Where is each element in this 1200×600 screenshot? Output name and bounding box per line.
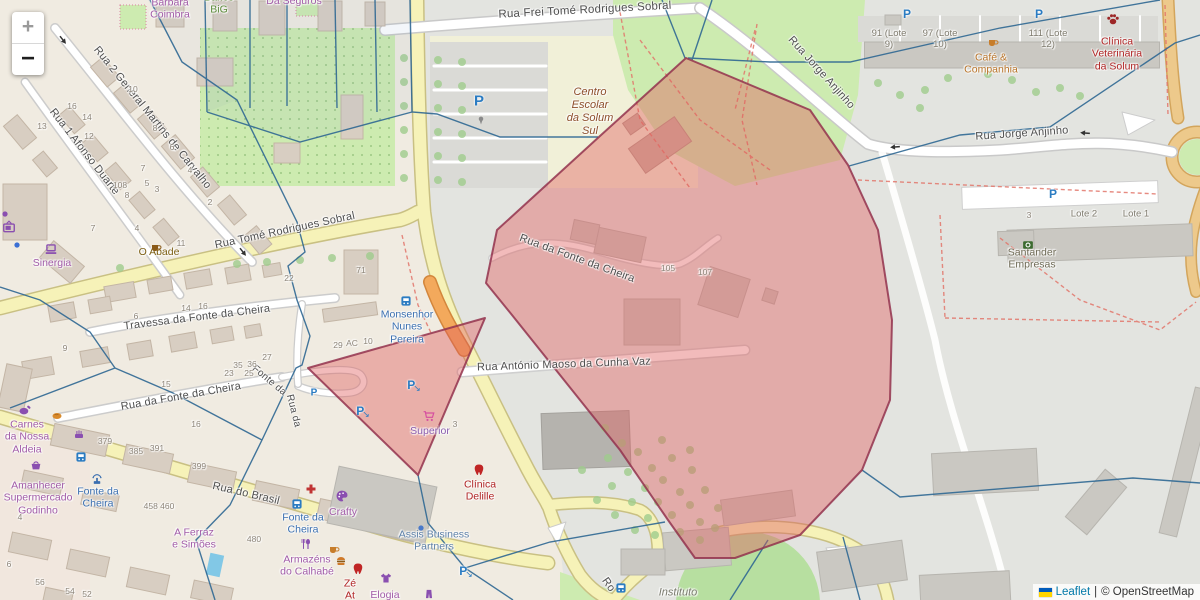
map-tiles [0, 0, 1200, 600]
ukraine-flag-icon [1039, 588, 1052, 597]
attribution-separator: | [1094, 586, 1097, 598]
zoom-control: + − [12, 12, 44, 75]
zoom-out-button[interactable]: − [12, 44, 44, 75]
leaflet-link[interactable]: Leaflet [1056, 586, 1091, 598]
attribution-bar: Leaflet | © OpenStreetMap [1033, 584, 1200, 600]
map-canvas[interactable]: Rua Frei Tomé Rodrigues SobralRua Jorge … [0, 0, 1200, 600]
zoom-in-button[interactable]: + [12, 12, 44, 44]
osm-link[interactable]: © OpenStreetMap [1101, 586, 1194, 598]
